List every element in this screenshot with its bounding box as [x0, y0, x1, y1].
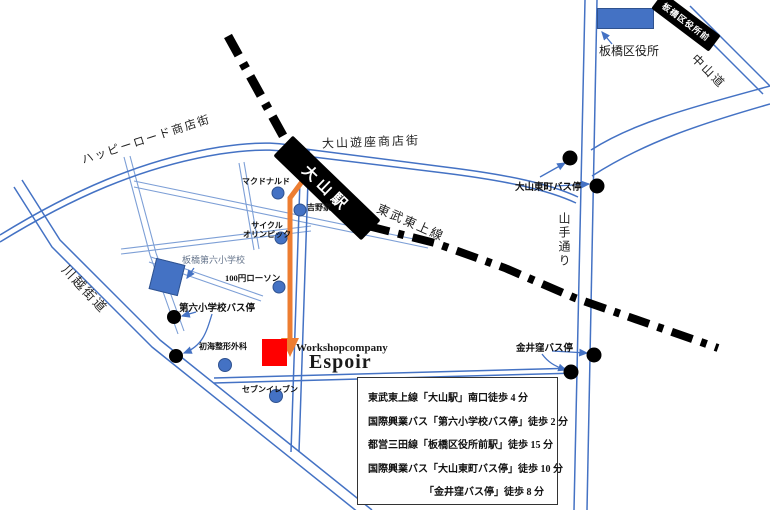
access-line: 東武東上線「大山駅」南口徒歩 4 分 [368, 387, 549, 411]
yamate-road [574, 0, 585, 510]
clinic-dot [219, 359, 232, 372]
mcdonalds-dot [272, 187, 284, 199]
destination-name-label: Espoir [309, 351, 372, 374]
access-line: 国際興業バス「第六小学校バス停」徒歩 2 分 [368, 411, 549, 435]
lawson-label: 100円ローソン [225, 272, 280, 284]
kanaikubo-stop-dot1 [587, 348, 602, 363]
higashicho-bus-stop-label: 大山東町バス停 [515, 179, 582, 193]
kanaikubo-bus-stop-label: 金井窪バス停 [516, 340, 573, 354]
cycle-olympic-label: サイクル オリンピック [240, 221, 294, 239]
yoshinoya-label: 吉野家 [307, 202, 331, 213]
seven-eleven-label: セブンイレブン [242, 384, 298, 395]
access-info-box: 東武東上線「大山駅」南口徒歩 4 分 国際興業バス「第六小学校バス停」徒歩 2 … [357, 377, 558, 505]
ward-office-building [597, 8, 654, 29]
access-line: 都営三田線「板橋区役所前駅」徒歩 15 分 [368, 434, 549, 458]
clinic-label: 初海整形外科 [199, 341, 247, 352]
yamate-road-label: 山手通り [556, 212, 573, 268]
access-line: 国際興業バス「大山東町バス停」徒歩 10 分 [368, 458, 549, 482]
kanaikubo-arrow2-icon [542, 354, 566, 370]
poi-dots [219, 187, 307, 403]
dairoku-bus-stop-label: 第六小学校バス停 [179, 300, 255, 314]
school-label: 板橋第六小学校 [182, 253, 245, 266]
kanaikubo-stop-dot2 [564, 365, 579, 380]
ward-office-label: 板橋区役所 [599, 42, 659, 59]
higashicho-stop-dot2 [590, 179, 605, 194]
dairoku-stop-dot2 [169, 349, 183, 363]
access-map: 大山駅 板橋区役所前 ハッピーロード商店街 大山遊座商店街 川越街道 山手通り … [0, 0, 770, 510]
callout-arrows [182, 32, 612, 370]
yoshinoya-dot [294, 204, 306, 216]
destination-marker [262, 339, 287, 366]
higashicho-arrow1-icon [540, 163, 565, 177]
access-line: 「金井窪バス停」徒歩 8 分 [368, 481, 549, 505]
yuza-street-label: 大山遊座商店街 [322, 131, 421, 151]
higashicho-stop-dot1 [563, 151, 578, 166]
tobu-tojo-railway [228, 36, 718, 348]
mcdonalds-label: マクドナルド [242, 176, 290, 187]
